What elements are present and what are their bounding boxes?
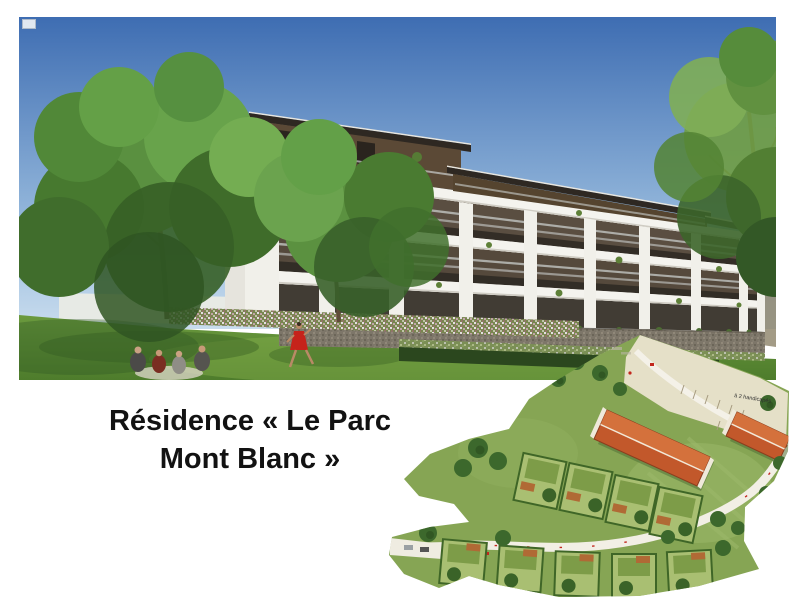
red-marker xyxy=(628,371,631,374)
photo-corner-artifact xyxy=(22,19,36,29)
site-plan-drawing: à 2 handicapés xyxy=(368,333,792,599)
building-photo xyxy=(19,17,776,380)
red-marker xyxy=(650,363,654,366)
car xyxy=(420,547,429,552)
car xyxy=(404,545,413,550)
site-plan: à 2 handicapés xyxy=(368,333,792,599)
building-rendering xyxy=(19,17,776,380)
real-estate-slide: Résidence « Le Parc Mont Blanc » xyxy=(0,0,800,600)
